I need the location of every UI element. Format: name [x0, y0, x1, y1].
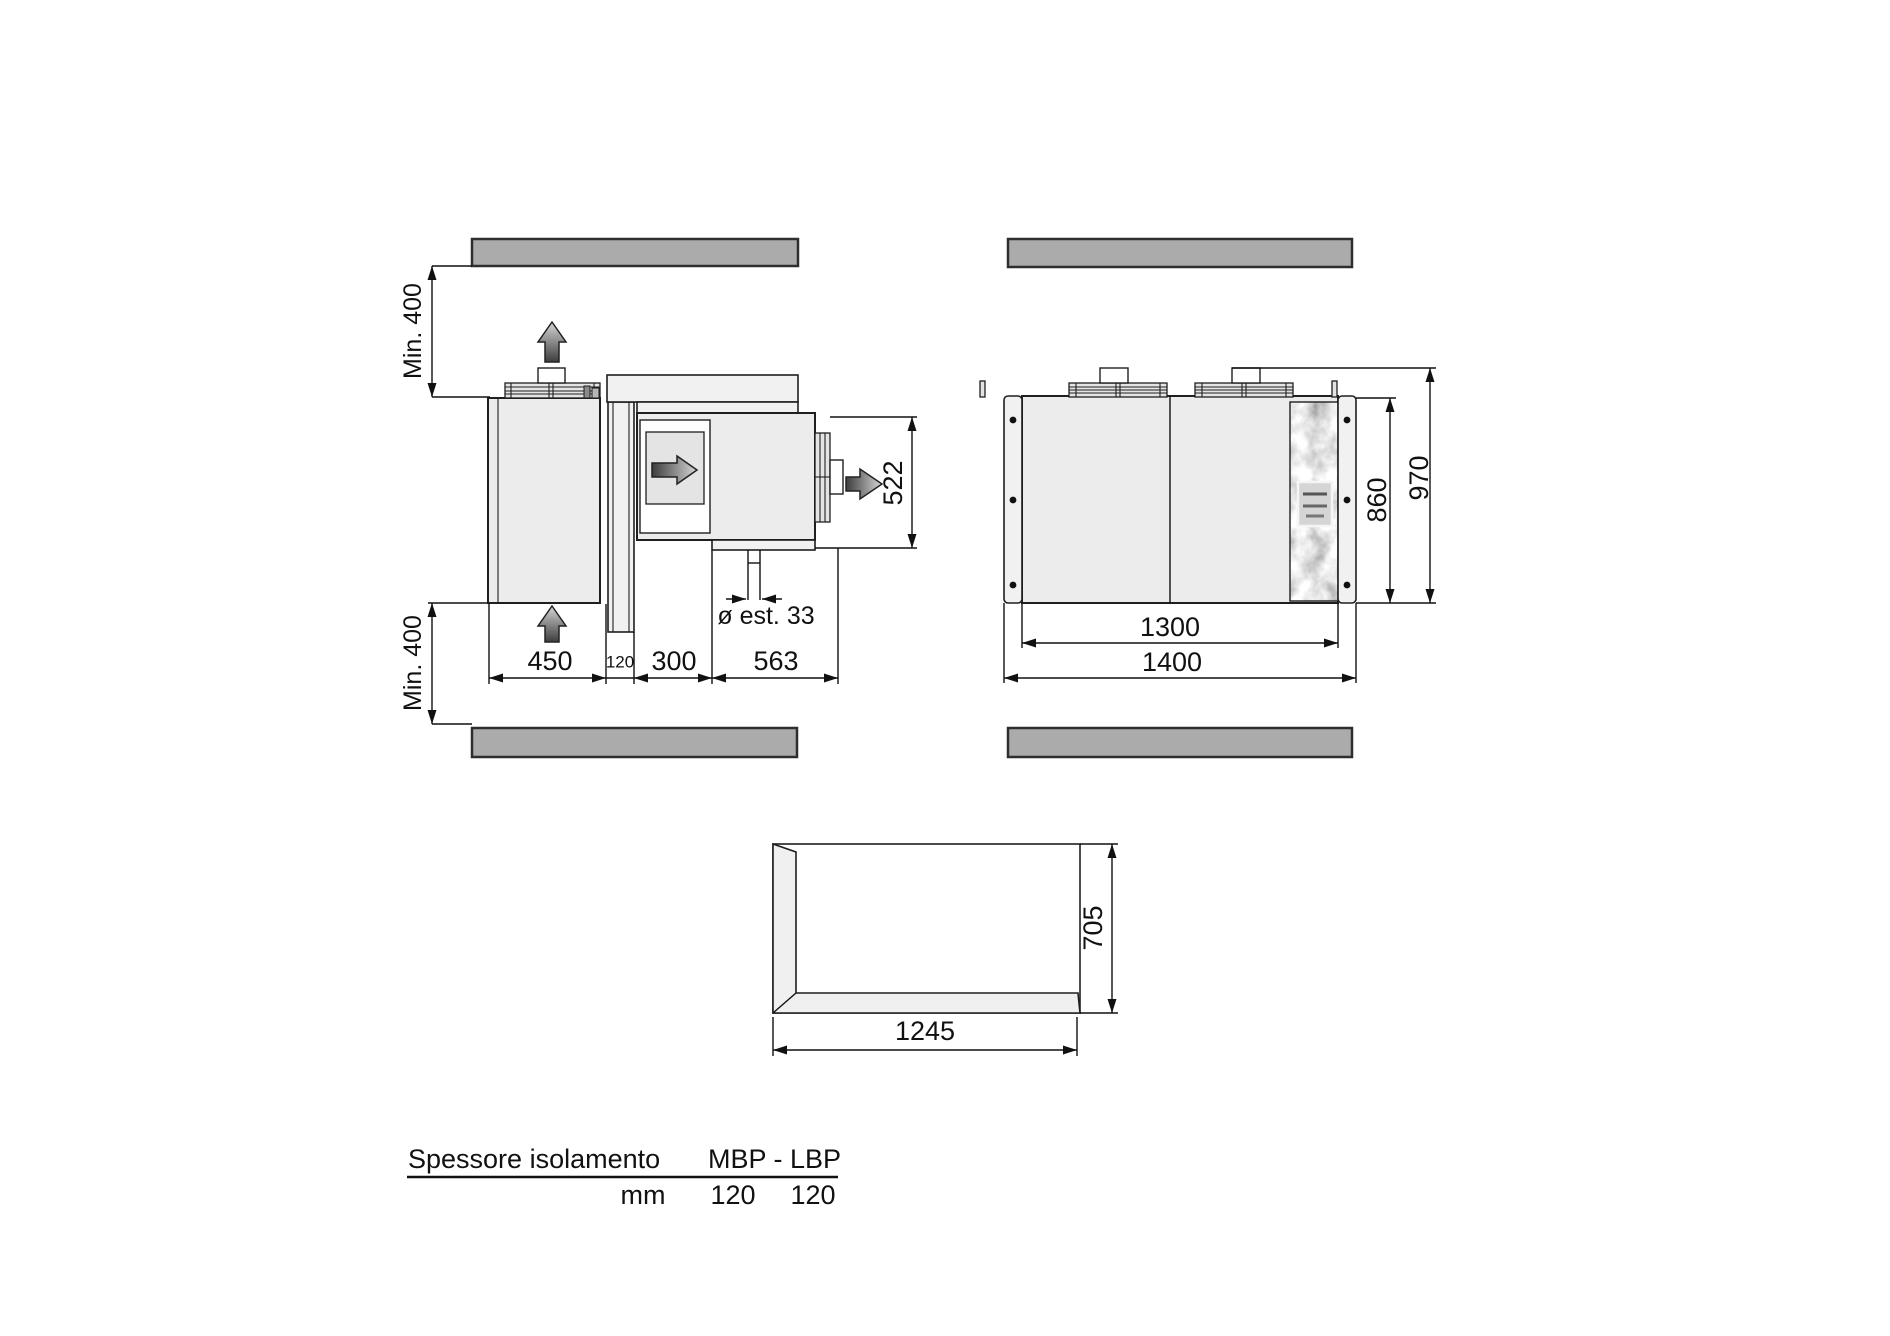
dim-label-1400: 1400 [1142, 647, 1202, 677]
side-view-chimney [538, 368, 565, 383]
evaporator-block [488, 398, 600, 603]
dim-label-drain: ø est. 33 [717, 602, 814, 630]
front-vent-stack-left [1069, 368, 1167, 397]
dim-1245: 1245 [773, 1016, 1077, 1056]
dim-705: 705 [1078, 844, 1118, 1013]
side-view-wall-top [472, 239, 798, 266]
drain-pipe [748, 550, 760, 600]
dim-label-522: 522 [878, 460, 908, 505]
front-chimney-left [1100, 368, 1128, 383]
dim-label-860: 860 [1362, 477, 1392, 522]
monoblock-dimension-drawing: 522 ø est. 33 Min. 400 Min. 400 [0, 0, 1890, 1336]
dim-min400-bottom: Min. 400 [399, 603, 488, 724]
insulation-table: Spessore isolamento MBP - LBP mm 120 120 [407, 1144, 841, 1210]
dim-label-450: 450 [527, 646, 572, 676]
rating-plate [1298, 482, 1332, 526]
dim-label-120: 120 [606, 653, 634, 672]
valve-fitting [592, 388, 599, 398]
condenser-tray [712, 540, 815, 550]
airflow-right-discharge-icon [846, 469, 882, 499]
valve-fitting [584, 386, 590, 398]
dim-860: 860 [1356, 398, 1396, 603]
table-value-lbp: 120 [790, 1180, 835, 1210]
dim-label-1300: 1300 [1140, 612, 1200, 642]
front-view: 860 970 1300 1400 [980, 239, 1436, 757]
technical-drawing-page: 522 ø est. 33 Min. 400 Min. 400 [0, 0, 1890, 1336]
table-value-mbp: 120 [710, 1180, 755, 1210]
front-vent-stack-right [1195, 368, 1293, 397]
opening-outline [773, 844, 1080, 1013]
side-view-vent-stack [505, 368, 600, 398]
right-mounting-flange [1338, 396, 1356, 603]
top-plenum [607, 375, 798, 402]
cold-room-wall-section [608, 402, 634, 632]
top-plenum-lower-lip [637, 402, 798, 413]
side-view-wall-bottom [472, 728, 797, 757]
table-header-value: MBP - LBP [708, 1144, 841, 1174]
discharge-spigot [830, 460, 843, 494]
table-unit-label: mm [621, 1180, 666, 1210]
dim-1300: 1300 [1022, 603, 1338, 648]
left-pin [980, 381, 985, 397]
condenser-grille [815, 433, 830, 522]
dim-label-1245: 1245 [895, 1016, 955, 1046]
front-chimney-right [1232, 368, 1260, 383]
right-pin [1332, 381, 1337, 397]
condenser-coil-photo [1290, 402, 1338, 601]
dim-label-min400-top: Min. 400 [399, 283, 427, 379]
airflow-up-bottom-icon [538, 606, 566, 642]
dim-label-563: 563 [753, 646, 798, 676]
front-view-wall-top [1008, 239, 1352, 267]
airflow-up-top-icon [538, 322, 566, 362]
dim-label-970: 970 [1404, 455, 1434, 500]
left-mounting-flange [1004, 396, 1022, 603]
front-view-wall-bottom [1008, 728, 1352, 757]
dim-label-705: 705 [1078, 905, 1108, 950]
dim-drain: ø est. 33 [717, 595, 814, 631]
dim-label-300: 300 [651, 646, 696, 676]
side-view: 522 ø est. 33 Min. 400 Min. 400 [399, 239, 917, 757]
dim-label-min400-bottom: Min. 400 [399, 615, 427, 711]
dim-min400-top: Min. 400 [399, 266, 490, 397]
table-header-label: Spessore isolamento [408, 1144, 660, 1174]
wall-opening-view: 705 1245 [773, 844, 1118, 1056]
